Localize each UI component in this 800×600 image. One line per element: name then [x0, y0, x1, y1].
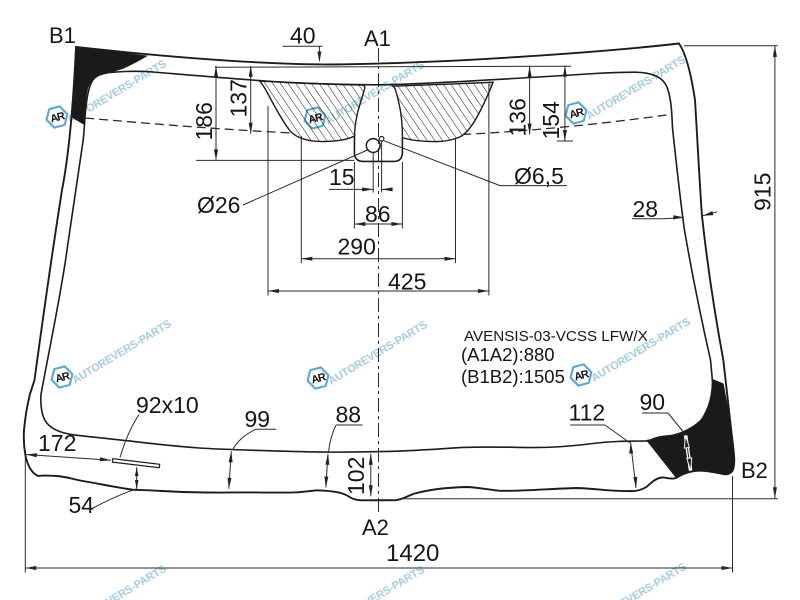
svg-text:88: 88 [336, 402, 362, 428]
svg-text:99: 99 [245, 406, 271, 432]
svg-text:B1: B1 [49, 23, 76, 48]
svg-text:102: 102 [343, 457, 369, 495]
svg-text:B2: B2 [741, 458, 768, 483]
svg-text:136: 136 [505, 98, 531, 136]
svg-text:290: 290 [338, 234, 376, 260]
svg-text:1420: 1420 [386, 540, 439, 567]
svg-text:86: 86 [365, 201, 391, 227]
svg-text:172: 172 [38, 430, 76, 456]
svg-text:137: 137 [226, 79, 252, 117]
svg-text:(A1A2):880: (A1A2):880 [461, 344, 555, 365]
svg-text:154: 154 [538, 101, 564, 140]
svg-text:915: 915 [750, 173, 776, 211]
svg-text:40: 40 [290, 23, 316, 49]
svg-text:Ø26: Ø26 [197, 192, 240, 218]
svg-text:15: 15 [329, 164, 355, 190]
svg-text:54: 54 [69, 492, 95, 518]
svg-text:(B1B2):1505: (B1B2):1505 [461, 366, 565, 387]
svg-text:90: 90 [640, 389, 666, 415]
svg-text:92x10: 92x10 [136, 392, 199, 418]
svg-text:AVENSIS-03-VCSS LFW/X: AVENSIS-03-VCSS LFW/X [464, 328, 648, 345]
svg-text:A1: A1 [364, 26, 391, 51]
svg-text:186: 186 [191, 102, 217, 140]
svg-text:28: 28 [633, 196, 659, 222]
svg-text:112: 112 [569, 400, 606, 426]
svg-text:A2: A2 [362, 515, 389, 540]
